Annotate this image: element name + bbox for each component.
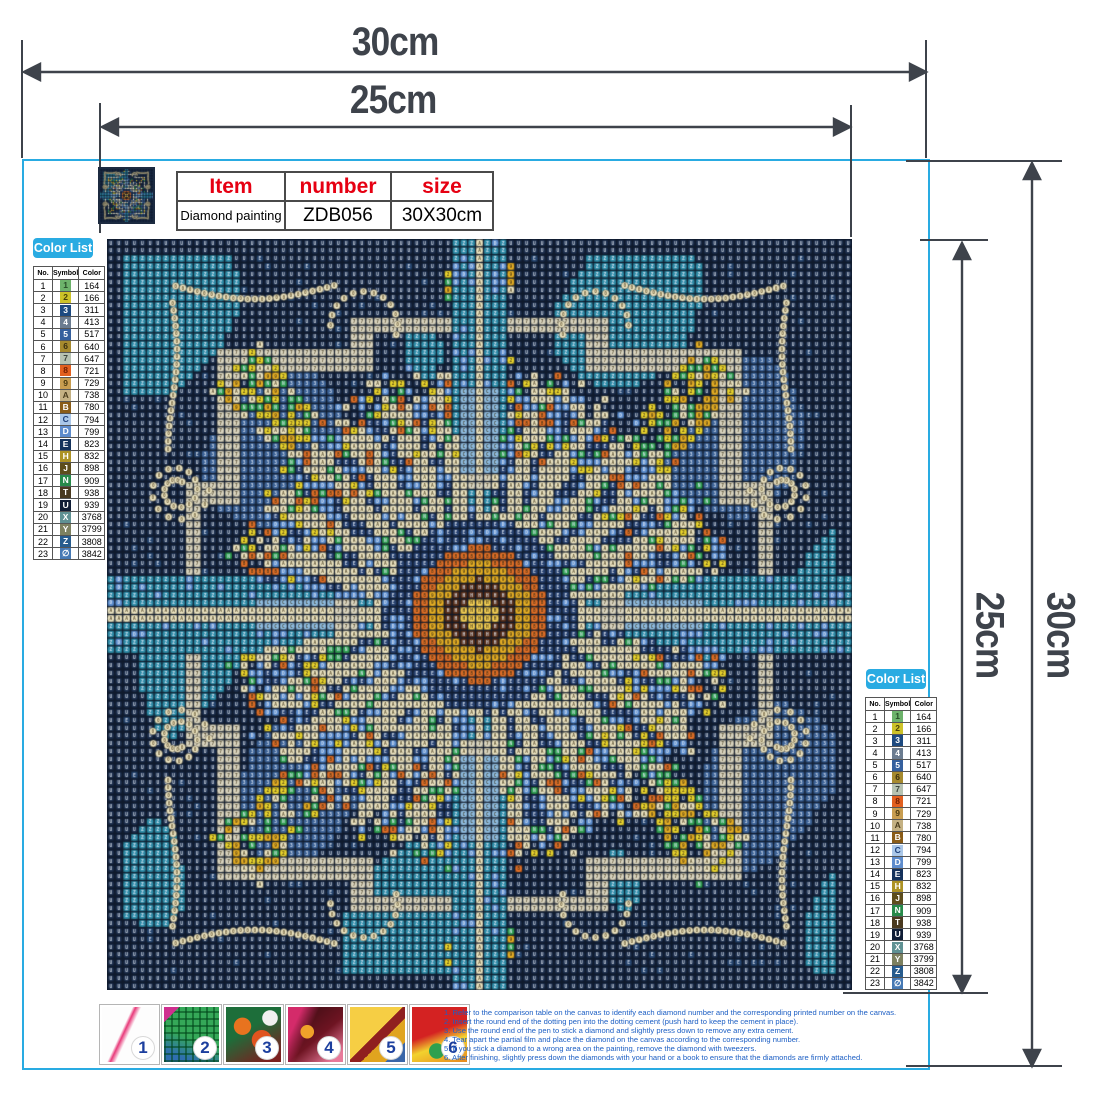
step-photo-4: 4 <box>286 1005 345 1064</box>
color-code: 938 <box>911 917 937 929</box>
color-no: 7 <box>34 353 53 365</box>
color-code: 640 <box>79 340 105 352</box>
color-no: 5 <box>866 759 885 771</box>
color-list-header-row: No.SymbolColor <box>34 267 105 280</box>
color-symbol-chip: J <box>892 893 903 904</box>
color-no: 12 <box>34 414 53 426</box>
color-code: 164 <box>79 280 105 292</box>
color-list-row: 15H832 <box>34 450 105 462</box>
color-list-col-symbol: Symbol <box>885 698 911 711</box>
color-list-row: 23∅3842 <box>34 548 105 560</box>
color-symbol-cell: N <box>885 905 911 917</box>
color-symbol-chip: Z <box>892 966 903 977</box>
color-symbol-chip: X <box>60 512 71 523</box>
color-code: 738 <box>79 389 105 401</box>
color-no: 12 <box>866 844 885 856</box>
color-symbol-cell: U <box>885 929 911 941</box>
color-no: 8 <box>866 795 885 807</box>
color-list-row: 19U939 <box>866 929 937 941</box>
color-no: 18 <box>34 487 53 499</box>
color-no: 9 <box>866 808 885 820</box>
color-list-row: 10A738 <box>34 389 105 401</box>
color-list-col-symbol: Symbol <box>53 267 79 280</box>
color-symbol-chip: E <box>60 439 71 450</box>
color-symbol-cell: D <box>885 856 911 868</box>
color-code: 729 <box>911 808 937 820</box>
color-no: 21 <box>34 523 53 535</box>
color-list-row: 12C794 <box>34 414 105 426</box>
color-code: 311 <box>79 304 105 316</box>
color-code: 3768 <box>79 511 105 523</box>
color-list-row: 20X3768 <box>34 511 105 523</box>
color-code: 3808 <box>79 535 105 547</box>
color-list-row: 18T938 <box>34 487 105 499</box>
color-list-row: 99729 <box>34 377 105 389</box>
color-symbol-cell: 5 <box>885 759 911 771</box>
color-no: 6 <box>34 340 53 352</box>
color-code: 832 <box>911 880 937 892</box>
color-list-title-right: Color List <box>866 669 926 689</box>
step-photo-strip: 123456 <box>100 1005 469 1064</box>
color-no: 22 <box>866 965 885 977</box>
color-symbol-cell: 9 <box>53 377 79 389</box>
color-list-row: 88721 <box>34 365 105 377</box>
instruction-line-1: 1. Refer to the comparison table on the … <box>444 1008 924 1017</box>
color-code: 166 <box>911 723 937 735</box>
color-symbol-chip: 4 <box>892 748 903 759</box>
color-symbol-chip: ∅ <box>60 548 71 559</box>
color-symbol-chip: B <box>892 832 903 843</box>
color-list-row: 77647 <box>34 353 105 365</box>
color-code: 938 <box>79 487 105 499</box>
color-symbol-cell: E <box>53 438 79 450</box>
color-no: 16 <box>34 462 53 474</box>
color-symbol-cell: C <box>53 414 79 426</box>
color-no: 19 <box>34 499 53 511</box>
color-list-row: 88721 <box>866 795 937 807</box>
step-number-badge: 5 <box>379 1036 403 1060</box>
color-code: 794 <box>911 844 937 856</box>
color-no: 10 <box>866 820 885 832</box>
color-symbol-cell: ∅ <box>53 548 79 560</box>
color-list-row: 16J898 <box>34 462 105 474</box>
step-number-badge: 3 <box>255 1036 279 1060</box>
color-code: 166 <box>79 292 105 304</box>
color-symbol-chip: 3 <box>60 305 71 316</box>
diamond-painting-canvas-art <box>107 239 852 990</box>
color-symbol-chip: N <box>60 475 71 486</box>
color-list-row: 44413 <box>34 316 105 328</box>
color-symbol-chip: B <box>60 402 71 413</box>
color-symbol-chip: E <box>892 869 903 880</box>
color-symbol-chip: C <box>892 845 903 856</box>
color-no: 2 <box>866 723 885 735</box>
color-code: 909 <box>79 475 105 487</box>
product-table-value-number: ZDB056 <box>285 201 391 230</box>
color-list-col-color: Color <box>911 698 937 711</box>
color-no: 14 <box>34 438 53 450</box>
color-code: 413 <box>79 316 105 328</box>
color-code: 3799 <box>911 953 937 965</box>
color-no: 21 <box>866 953 885 965</box>
color-symbol-cell: 3 <box>885 735 911 747</box>
product-thumbnail <box>98 167 155 224</box>
product-table-header-size: size <box>391 172 493 201</box>
dim-label-right-25cm: 25cm <box>967 586 1012 684</box>
color-list-row: 13D799 <box>34 426 105 438</box>
color-symbol-chip: X <box>892 942 903 953</box>
dim-label-top-30cm: 30cm <box>325 20 465 65</box>
color-symbol-cell: J <box>53 462 79 474</box>
color-no: 4 <box>866 747 885 759</box>
product-table-value-item: Diamond painting <box>177 201 285 230</box>
color-list-col-no: No. <box>866 698 885 711</box>
color-code: 3842 <box>79 548 105 560</box>
color-no: 3 <box>866 735 885 747</box>
color-code: 647 <box>79 353 105 365</box>
color-no: 4 <box>34 316 53 328</box>
color-symbol-chip: ∅ <box>892 978 903 989</box>
color-list-title-left: Color List <box>33 238 93 258</box>
color-list-row: 33311 <box>866 735 937 747</box>
color-code: 3842 <box>911 977 937 989</box>
color-code: 3768 <box>911 941 937 953</box>
color-list-col-color: Color <box>79 267 105 280</box>
color-symbol-chip: 7 <box>892 784 903 795</box>
color-symbol-chip: C <box>60 414 71 425</box>
color-symbol-chip: J <box>60 463 71 474</box>
color-symbol-chip: 4 <box>60 317 71 328</box>
color-symbol-cell: 8 <box>885 795 911 807</box>
color-symbol-chip: N <box>892 905 903 916</box>
color-code: 3799 <box>79 523 105 535</box>
color-no: 1 <box>34 280 53 292</box>
color-code: 738 <box>911 820 937 832</box>
color-symbol-chip: D <box>60 426 71 437</box>
color-list-col-no: No. <box>34 267 53 280</box>
color-code: 898 <box>911 892 937 904</box>
color-list-row: 11164 <box>866 711 937 723</box>
color-no: 9 <box>34 377 53 389</box>
color-symbol-cell: 5 <box>53 328 79 340</box>
color-list-table-right: No.SymbolColor11164221663331144413555176… <box>865 697 937 990</box>
color-code: 794 <box>79 414 105 426</box>
color-list-row: 55517 <box>34 328 105 340</box>
color-list-row: 13D799 <box>866 856 937 868</box>
color-no: 19 <box>866 929 885 941</box>
color-list-row: 21Y3799 <box>34 523 105 535</box>
step-number-badge: 4 <box>317 1036 341 1060</box>
color-symbol-chip: H <box>892 881 903 892</box>
color-list-row: 11164 <box>34 280 105 292</box>
dim-label-top-25cm: 25cm <box>323 78 463 123</box>
color-code: 311 <box>911 735 937 747</box>
color-symbol-cell: U <box>53 499 79 511</box>
color-list-row: 22Z3808 <box>34 535 105 547</box>
color-symbol-cell: C <box>885 844 911 856</box>
color-list-row: 55517 <box>866 759 937 771</box>
color-code: 832 <box>79 450 105 462</box>
color-symbol-chip: 9 <box>60 378 71 389</box>
product-table-header-item: Item <box>177 172 285 201</box>
color-code: 780 <box>911 832 937 844</box>
color-no: 13 <box>866 856 885 868</box>
color-code: 647 <box>911 783 937 795</box>
color-code: 799 <box>79 426 105 438</box>
color-code: 721 <box>79 365 105 377</box>
color-list-row: 22166 <box>866 723 937 735</box>
color-list-row: 11B780 <box>866 832 937 844</box>
color-symbol-cell: 8 <box>53 365 79 377</box>
color-symbol-cell: 1 <box>53 280 79 292</box>
step-number-badge: 2 <box>193 1036 217 1060</box>
color-no: 11 <box>34 401 53 413</box>
color-no: 16 <box>866 892 885 904</box>
color-symbol-chip: T <box>892 917 903 928</box>
color-code: 640 <box>911 771 937 783</box>
color-symbol-chip: Z <box>60 536 71 547</box>
color-symbol-chip: 8 <box>60 365 71 376</box>
color-code: 909 <box>911 905 937 917</box>
color-no: 18 <box>866 917 885 929</box>
color-symbol-cell: N <box>53 475 79 487</box>
color-symbol-cell: B <box>53 401 79 413</box>
color-symbol-cell: Z <box>53 535 79 547</box>
color-symbol-chip: Y <box>892 954 903 965</box>
dim-label-right-30cm: 30cm <box>1038 586 1083 684</box>
color-symbol-cell: 2 <box>885 723 911 735</box>
color-symbol-cell: 1 <box>885 711 911 723</box>
color-symbol-cell: D <box>53 426 79 438</box>
color-code: 823 <box>79 438 105 450</box>
color-no: 17 <box>34 475 53 487</box>
color-symbol-cell: X <box>885 941 911 953</box>
instruction-line-2: 2. Insert the round end of the dotting p… <box>444 1017 924 1026</box>
color-no: 17 <box>866 905 885 917</box>
color-list-row: 19U939 <box>34 499 105 511</box>
color-list-row: 16J898 <box>866 892 937 904</box>
color-list-row: 17N909 <box>866 905 937 917</box>
color-code: 898 <box>79 462 105 474</box>
color-symbol-cell: X <box>53 511 79 523</box>
color-code: 780 <box>79 401 105 413</box>
color-symbol-cell: H <box>53 450 79 462</box>
color-symbol-chip: 6 <box>60 341 71 352</box>
color-symbol-cell: 9 <box>885 808 911 820</box>
color-code: 799 <box>911 856 937 868</box>
color-symbol-chip: 5 <box>892 760 903 771</box>
color-symbol-cell: J <box>885 892 911 904</box>
product-table-value-size: 30X30cm <box>391 201 493 230</box>
color-list-row: 23∅3842 <box>866 977 937 989</box>
color-symbol-cell: 7 <box>53 353 79 365</box>
color-no: 20 <box>34 511 53 523</box>
step-photo-5: 5 <box>348 1005 407 1064</box>
color-list-row: 12C794 <box>866 844 937 856</box>
color-list-row: 33311 <box>34 304 105 316</box>
color-no: 3 <box>34 304 53 316</box>
color-no: 11 <box>866 832 885 844</box>
product-table-header-number: number <box>285 172 391 201</box>
color-no: 22 <box>34 535 53 547</box>
color-symbol-cell: Y <box>885 953 911 965</box>
color-no: 14 <box>866 868 885 880</box>
color-list-row: 22166 <box>34 292 105 304</box>
color-no: 10 <box>34 389 53 401</box>
color-code: 3808 <box>911 965 937 977</box>
color-code: 939 <box>911 929 937 941</box>
product-info-table: Item number size Diamond painting ZDB056… <box>176 171 494 231</box>
color-symbol-cell: Z <box>885 965 911 977</box>
instruction-line-6: 6. After finishing, slightly press down … <box>444 1053 924 1062</box>
instruction-list: 1. Refer to the comparison table on the … <box>444 1008 924 1062</box>
color-code: 517 <box>79 328 105 340</box>
color-symbol-cell: 4 <box>53 316 79 328</box>
step-photo-3: 3 <box>224 1005 283 1064</box>
color-list-header-row: No.SymbolColor <box>866 698 937 711</box>
color-symbol-cell: E <box>885 868 911 880</box>
color-list-row: 14E823 <box>34 438 105 450</box>
step-number-badge: 1 <box>131 1036 155 1060</box>
color-symbol-cell: T <box>53 487 79 499</box>
color-list-row: 11B780 <box>34 401 105 413</box>
product-infographic-page: { "accent": "#29abe2", "dimensions": { "… <box>0 0 1100 1100</box>
color-no: 15 <box>866 880 885 892</box>
color-symbol-cell: 7 <box>885 783 911 795</box>
color-symbol-cell: A <box>53 389 79 401</box>
color-symbol-chip: 2 <box>892 723 903 734</box>
color-no: 8 <box>34 365 53 377</box>
color-code: 939 <box>79 499 105 511</box>
color-list-row: 17N909 <box>34 475 105 487</box>
color-symbol-chip: 7 <box>60 353 71 364</box>
color-list-row: 15H832 <box>866 880 937 892</box>
color-symbol-chip: H <box>60 451 71 462</box>
color-no: 2 <box>34 292 53 304</box>
color-list-row: 66640 <box>866 771 937 783</box>
color-symbol-chip: 5 <box>60 329 71 340</box>
color-list-row: 21Y3799 <box>866 953 937 965</box>
color-list-table-left: No.SymbolColor11164221663331144413555176… <box>33 266 105 560</box>
color-symbol-chip: T <box>60 487 71 498</box>
color-list-row: 14E823 <box>866 868 937 880</box>
color-list-row: 44413 <box>866 747 937 759</box>
color-no: 23 <box>34 548 53 560</box>
color-symbol-cell: Y <box>53 523 79 535</box>
instruction-line-4: 4. Tear apart the partial film and place… <box>444 1035 924 1044</box>
color-no: 20 <box>866 941 885 953</box>
step-photo-2: 2 <box>162 1005 221 1064</box>
color-symbol-chip: 9 <box>892 808 903 819</box>
color-list-row: 99729 <box>866 808 937 820</box>
color-symbol-chip: 1 <box>60 280 71 291</box>
color-symbol-chip: A <box>892 820 903 831</box>
color-code: 729 <box>79 377 105 389</box>
color-code: 413 <box>911 747 937 759</box>
color-symbol-chip: 1 <box>892 711 903 722</box>
color-list-row: 18T938 <box>866 917 937 929</box>
color-symbol-cell: 4 <box>885 747 911 759</box>
color-symbol-cell: ∅ <box>885 977 911 989</box>
color-list-row: 22Z3808 <box>866 965 937 977</box>
instruction-line-5: 5. If you stick a diamond to a wrong are… <box>444 1044 924 1053</box>
color-code: 517 <box>911 759 937 771</box>
product-thumbnail-art <box>100 169 153 222</box>
color-list-row: 66640 <box>34 340 105 352</box>
color-no: 6 <box>866 771 885 783</box>
color-symbol-cell: T <box>885 917 911 929</box>
color-symbol-cell: 2 <box>53 292 79 304</box>
color-no: 7 <box>866 783 885 795</box>
instruction-line-3: 3. Use the round end of the pen to stick… <box>444 1026 924 1035</box>
color-symbol-cell: B <box>885 832 911 844</box>
color-symbol-chip: A <box>60 390 71 401</box>
color-symbol-cell: A <box>885 820 911 832</box>
color-no: 23 <box>866 977 885 989</box>
color-code: 823 <box>911 868 937 880</box>
color-symbol-cell: 6 <box>53 340 79 352</box>
step-photo-1: 1 <box>100 1005 159 1064</box>
color-symbol-chip: U <box>892 929 903 940</box>
color-list-row: 77647 <box>866 783 937 795</box>
color-no: 13 <box>34 426 53 438</box>
color-symbol-chip: 8 <box>892 796 903 807</box>
color-symbol-chip: U <box>60 500 71 511</box>
color-no: 5 <box>34 328 53 340</box>
color-list-row: 10A738 <box>866 820 937 832</box>
color-code: 721 <box>911 795 937 807</box>
color-no: 15 <box>34 450 53 462</box>
color-symbol-cell: 6 <box>885 771 911 783</box>
color-symbol-cell: 3 <box>53 304 79 316</box>
color-symbol-chip: 2 <box>60 292 71 303</box>
color-symbol-chip: Y <box>60 524 71 535</box>
color-symbol-chip: 3 <box>892 735 903 746</box>
color-symbol-chip: 6 <box>892 772 903 783</box>
color-code: 164 <box>911 711 937 723</box>
color-no: 1 <box>866 711 885 723</box>
color-list-row: 20X3768 <box>866 941 937 953</box>
color-symbol-cell: H <box>885 880 911 892</box>
color-symbol-chip: D <box>892 857 903 868</box>
